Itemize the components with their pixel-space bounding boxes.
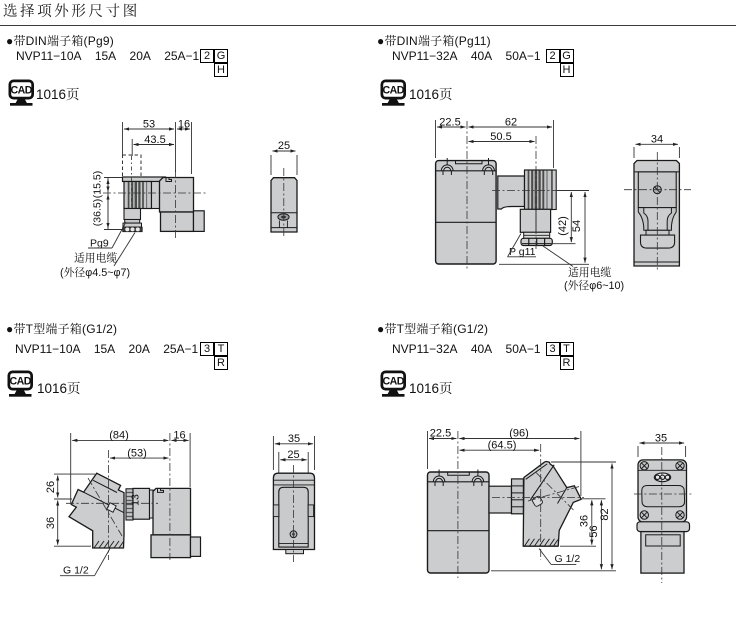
svg-text:53: 53 xyxy=(143,118,155,130)
svg-text:22.5: 22.5 xyxy=(430,428,451,440)
svg-text:(外径φ4.5~φ7): (外径φ4.5~φ7) xyxy=(60,265,130,280)
svg-text:36: 36 xyxy=(45,517,57,529)
svg-text:25: 25 xyxy=(287,449,299,461)
svg-text:(84): (84) xyxy=(109,429,129,441)
svg-text:适用电缆: 适用电缆 xyxy=(74,251,117,266)
svg-text:(53): (53) xyxy=(127,447,147,459)
svg-text:25: 25 xyxy=(278,140,290,152)
svg-text:(42): (42) xyxy=(557,216,569,236)
svg-text:(外径φ6~10): (外径φ6~10) xyxy=(564,278,624,293)
svg-text:G 1/2: G 1/2 xyxy=(63,565,89,577)
svg-text:16: 16 xyxy=(178,118,190,130)
svg-text:26: 26 xyxy=(45,481,57,493)
svg-text:G 1/2: G 1/2 xyxy=(555,553,581,565)
svg-text:(15.5): (15.5) xyxy=(92,171,104,198)
svg-text:(64.5): (64.5) xyxy=(488,439,517,451)
svg-text:62: 62 xyxy=(505,116,517,128)
svg-text:43.5: 43.5 xyxy=(144,134,165,146)
svg-text:82: 82 xyxy=(599,508,611,520)
svg-text:54: 54 xyxy=(571,220,583,232)
svg-text:16: 16 xyxy=(173,429,185,441)
svg-text:36: 36 xyxy=(579,515,591,527)
svg-text:22.5: 22.5 xyxy=(439,116,460,128)
svg-text:13: 13 xyxy=(130,494,142,506)
svg-text:34: 34 xyxy=(651,133,663,145)
svg-text:35: 35 xyxy=(288,433,300,445)
svg-text:56: 56 xyxy=(588,525,600,537)
svg-text:50.5: 50.5 xyxy=(490,131,511,143)
svg-text:35: 35 xyxy=(655,432,667,444)
svg-text:(36.5): (36.5) xyxy=(92,199,104,226)
svg-text:(96): (96) xyxy=(509,428,529,440)
